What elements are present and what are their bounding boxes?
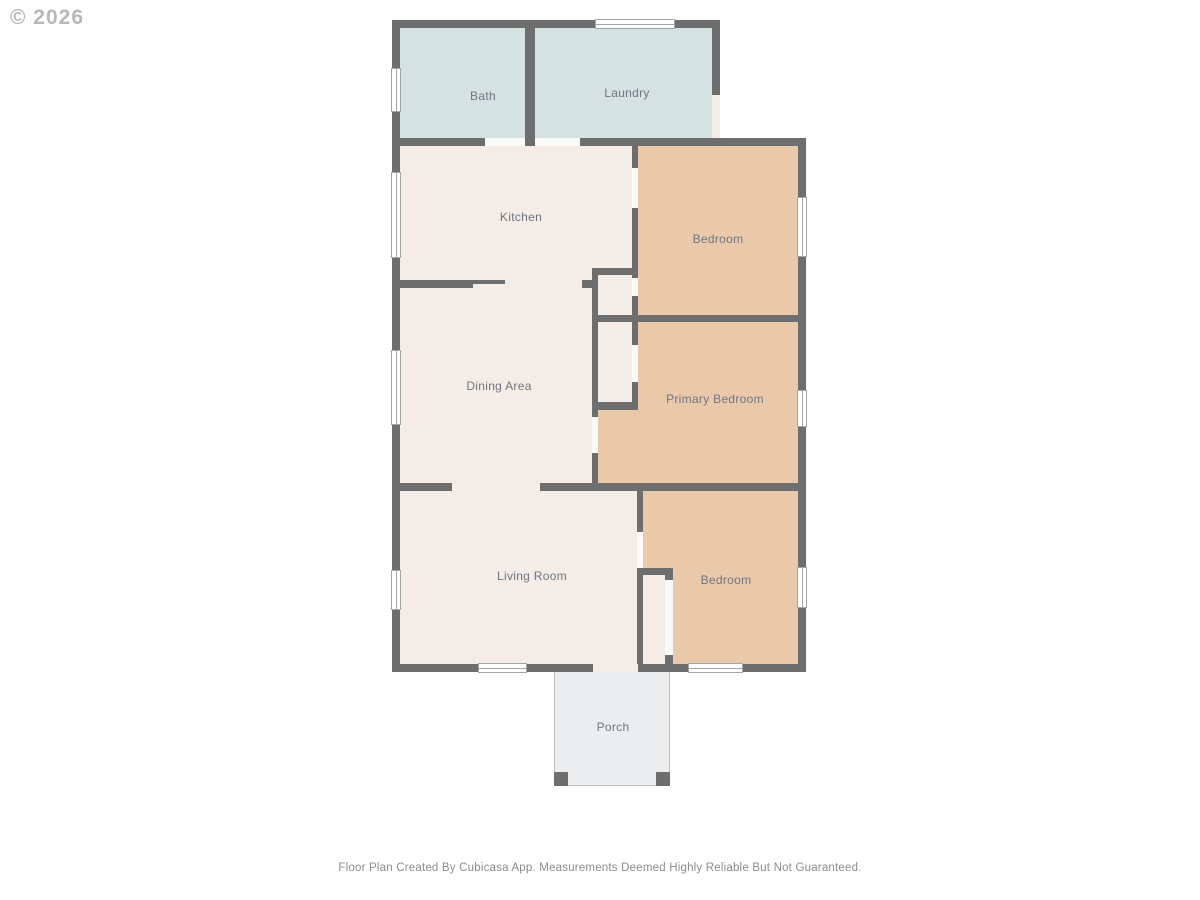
window-divider	[396, 69, 397, 111]
window	[688, 663, 743, 673]
wall	[592, 268, 598, 417]
wall	[632, 146, 638, 168]
room-label-living-room: Living Room	[497, 569, 567, 583]
door-opening	[665, 580, 673, 655]
door-opening	[485, 138, 525, 146]
window-divider	[479, 668, 526, 669]
room-label-bath: Bath	[470, 89, 496, 103]
wall	[397, 483, 452, 491]
wall	[473, 280, 505, 284]
room-label-dining-area: Dining Area	[466, 379, 531, 393]
disclaimer-text: Floor Plan Created By Cubicasa App. Meas…	[0, 862, 1200, 874]
wall	[582, 280, 592, 288]
room-bedroom-top	[638, 146, 798, 315]
window	[797, 390, 807, 427]
wall	[637, 491, 643, 532]
wall	[592, 402, 638, 410]
door-opening	[592, 417, 598, 453]
room-closet-top	[598, 275, 632, 315]
room-label-laundry: Laundry	[604, 86, 649, 100]
window-divider	[689, 668, 742, 669]
room-closet-bottom	[643, 575, 667, 664]
wall	[540, 483, 806, 491]
door-opening	[712, 95, 720, 138]
window-divider	[396, 173, 397, 257]
window	[797, 567, 807, 608]
window	[391, 68, 401, 112]
window	[391, 172, 401, 258]
window	[797, 197, 807, 257]
window	[478, 663, 527, 673]
room-label-bedroom-top: Bedroom	[693, 232, 744, 246]
wall	[637, 568, 643, 672]
door-opening	[593, 664, 638, 672]
wall	[665, 655, 673, 672]
window-divider	[396, 571, 397, 609]
room-label-kitchen: Kitchen	[500, 210, 542, 224]
room-label-primary-bedroom: Primary Bedroom	[666, 392, 764, 406]
window	[391, 350, 401, 425]
porch-post	[554, 772, 568, 786]
window-divider	[802, 391, 803, 426]
window	[595, 19, 675, 29]
room-label-bedroom-bottom: Bedroom	[701, 573, 752, 587]
wall	[392, 138, 485, 146]
wall	[632, 208, 638, 278]
floor-plan: BathLaundryKitchenBedroomDining AreaPrim…	[0, 0, 1200, 900]
wall	[580, 138, 806, 146]
room-bath	[400, 28, 525, 138]
room-closet-primary	[598, 322, 632, 402]
wall	[712, 20, 720, 95]
wall	[665, 568, 673, 580]
porch-post	[656, 772, 670, 786]
door-opening	[632, 168, 638, 208]
window-divider	[802, 198, 803, 256]
room-laundry	[535, 28, 712, 138]
door-opening	[637, 532, 643, 568]
door-opening	[535, 138, 580, 146]
window-divider	[596, 24, 674, 25]
door-opening	[632, 278, 638, 296]
wall	[595, 315, 806, 322]
window-divider	[802, 568, 803, 607]
wall	[525, 28, 535, 138]
door-opening	[632, 345, 638, 382]
window-divider	[396, 351, 397, 424]
room-label-porch: Porch	[597, 720, 630, 734]
wall	[525, 138, 535, 146]
window	[391, 570, 401, 610]
wall	[397, 280, 473, 288]
